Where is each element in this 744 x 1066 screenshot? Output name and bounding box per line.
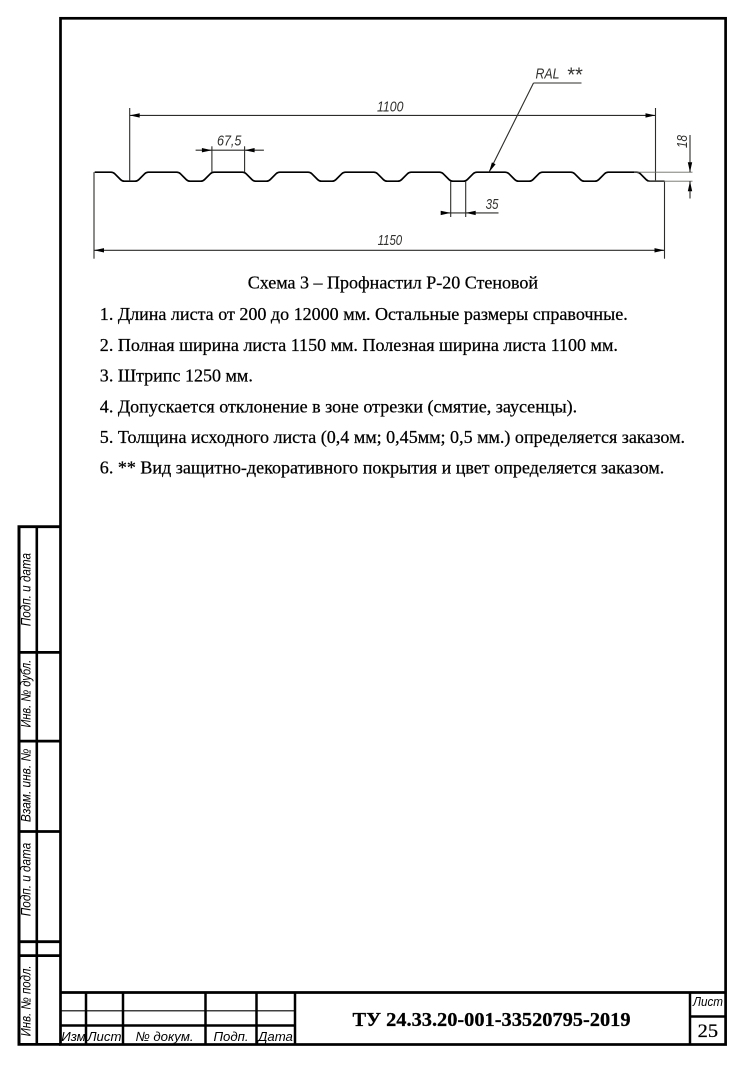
svg-text:1. Длина листа от 200 до 12000: 1. Длина листа от 200 до 12000 мм. Остал…	[100, 304, 628, 324]
svg-text:18: 18	[674, 134, 691, 148]
svg-text:Дата: Дата	[256, 1029, 293, 1044]
svg-text:Подп.: Подп.	[213, 1029, 248, 1044]
svg-text:35: 35	[486, 196, 499, 213]
svg-text:Инв. № подл.: Инв. № подл.	[19, 965, 34, 1036]
svg-text:Изм: Изм	[61, 1029, 85, 1044]
svg-text:Подп. и дата: Подп. и дата	[19, 553, 34, 627]
svg-text:6. ** Вид защитно-декоративног: 6. ** Вид защитно-декоративного покрытия…	[100, 458, 664, 478]
svg-text:Подп. и дата: Подп. и дата	[19, 842, 34, 916]
svg-text:2. Полная ширина листа 1150 мм: 2. Полная ширина листа 1150 мм. Полезная…	[100, 335, 618, 355]
svg-text:25: 25	[698, 1021, 718, 1042]
svg-text:RAL: RAL	[536, 66, 560, 83]
svg-text:1100: 1100	[377, 99, 404, 116]
svg-text:**: **	[567, 64, 583, 87]
svg-text:67,5: 67,5	[217, 132, 242, 149]
svg-text:Лист: Лист	[87, 1029, 122, 1044]
svg-text:Лист: Лист	[692, 994, 723, 1009]
svg-text:1150: 1150	[378, 232, 403, 249]
svg-text:5. Толщина исходного листа (0,: 5. Толщина исходного листа (0,4 мм; 0,45…	[100, 427, 685, 448]
svg-text:ТУ 24.33.20-001-33520795-2019: ТУ 24.33.20-001-33520795-2019	[353, 1009, 631, 1031]
svg-text:Схема 3 – Профнастил Р-20 Стен: Схема 3 – Профнастил Р-20 Стеновой	[248, 273, 539, 293]
svg-text:Инв. № дубл.: Инв. № дубл.	[19, 660, 34, 728]
svg-text:№ докум.: № докум.	[135, 1029, 193, 1044]
svg-text:Взам. инв. №: Взам. инв. №	[19, 748, 34, 822]
svg-text:4. Допускается отклонение в зо: 4. Допускается отклонение в зоне отрезки…	[100, 396, 577, 417]
svg-text:3. Штрипс 1250 мм.: 3. Штрипс 1250 мм.	[100, 366, 253, 386]
